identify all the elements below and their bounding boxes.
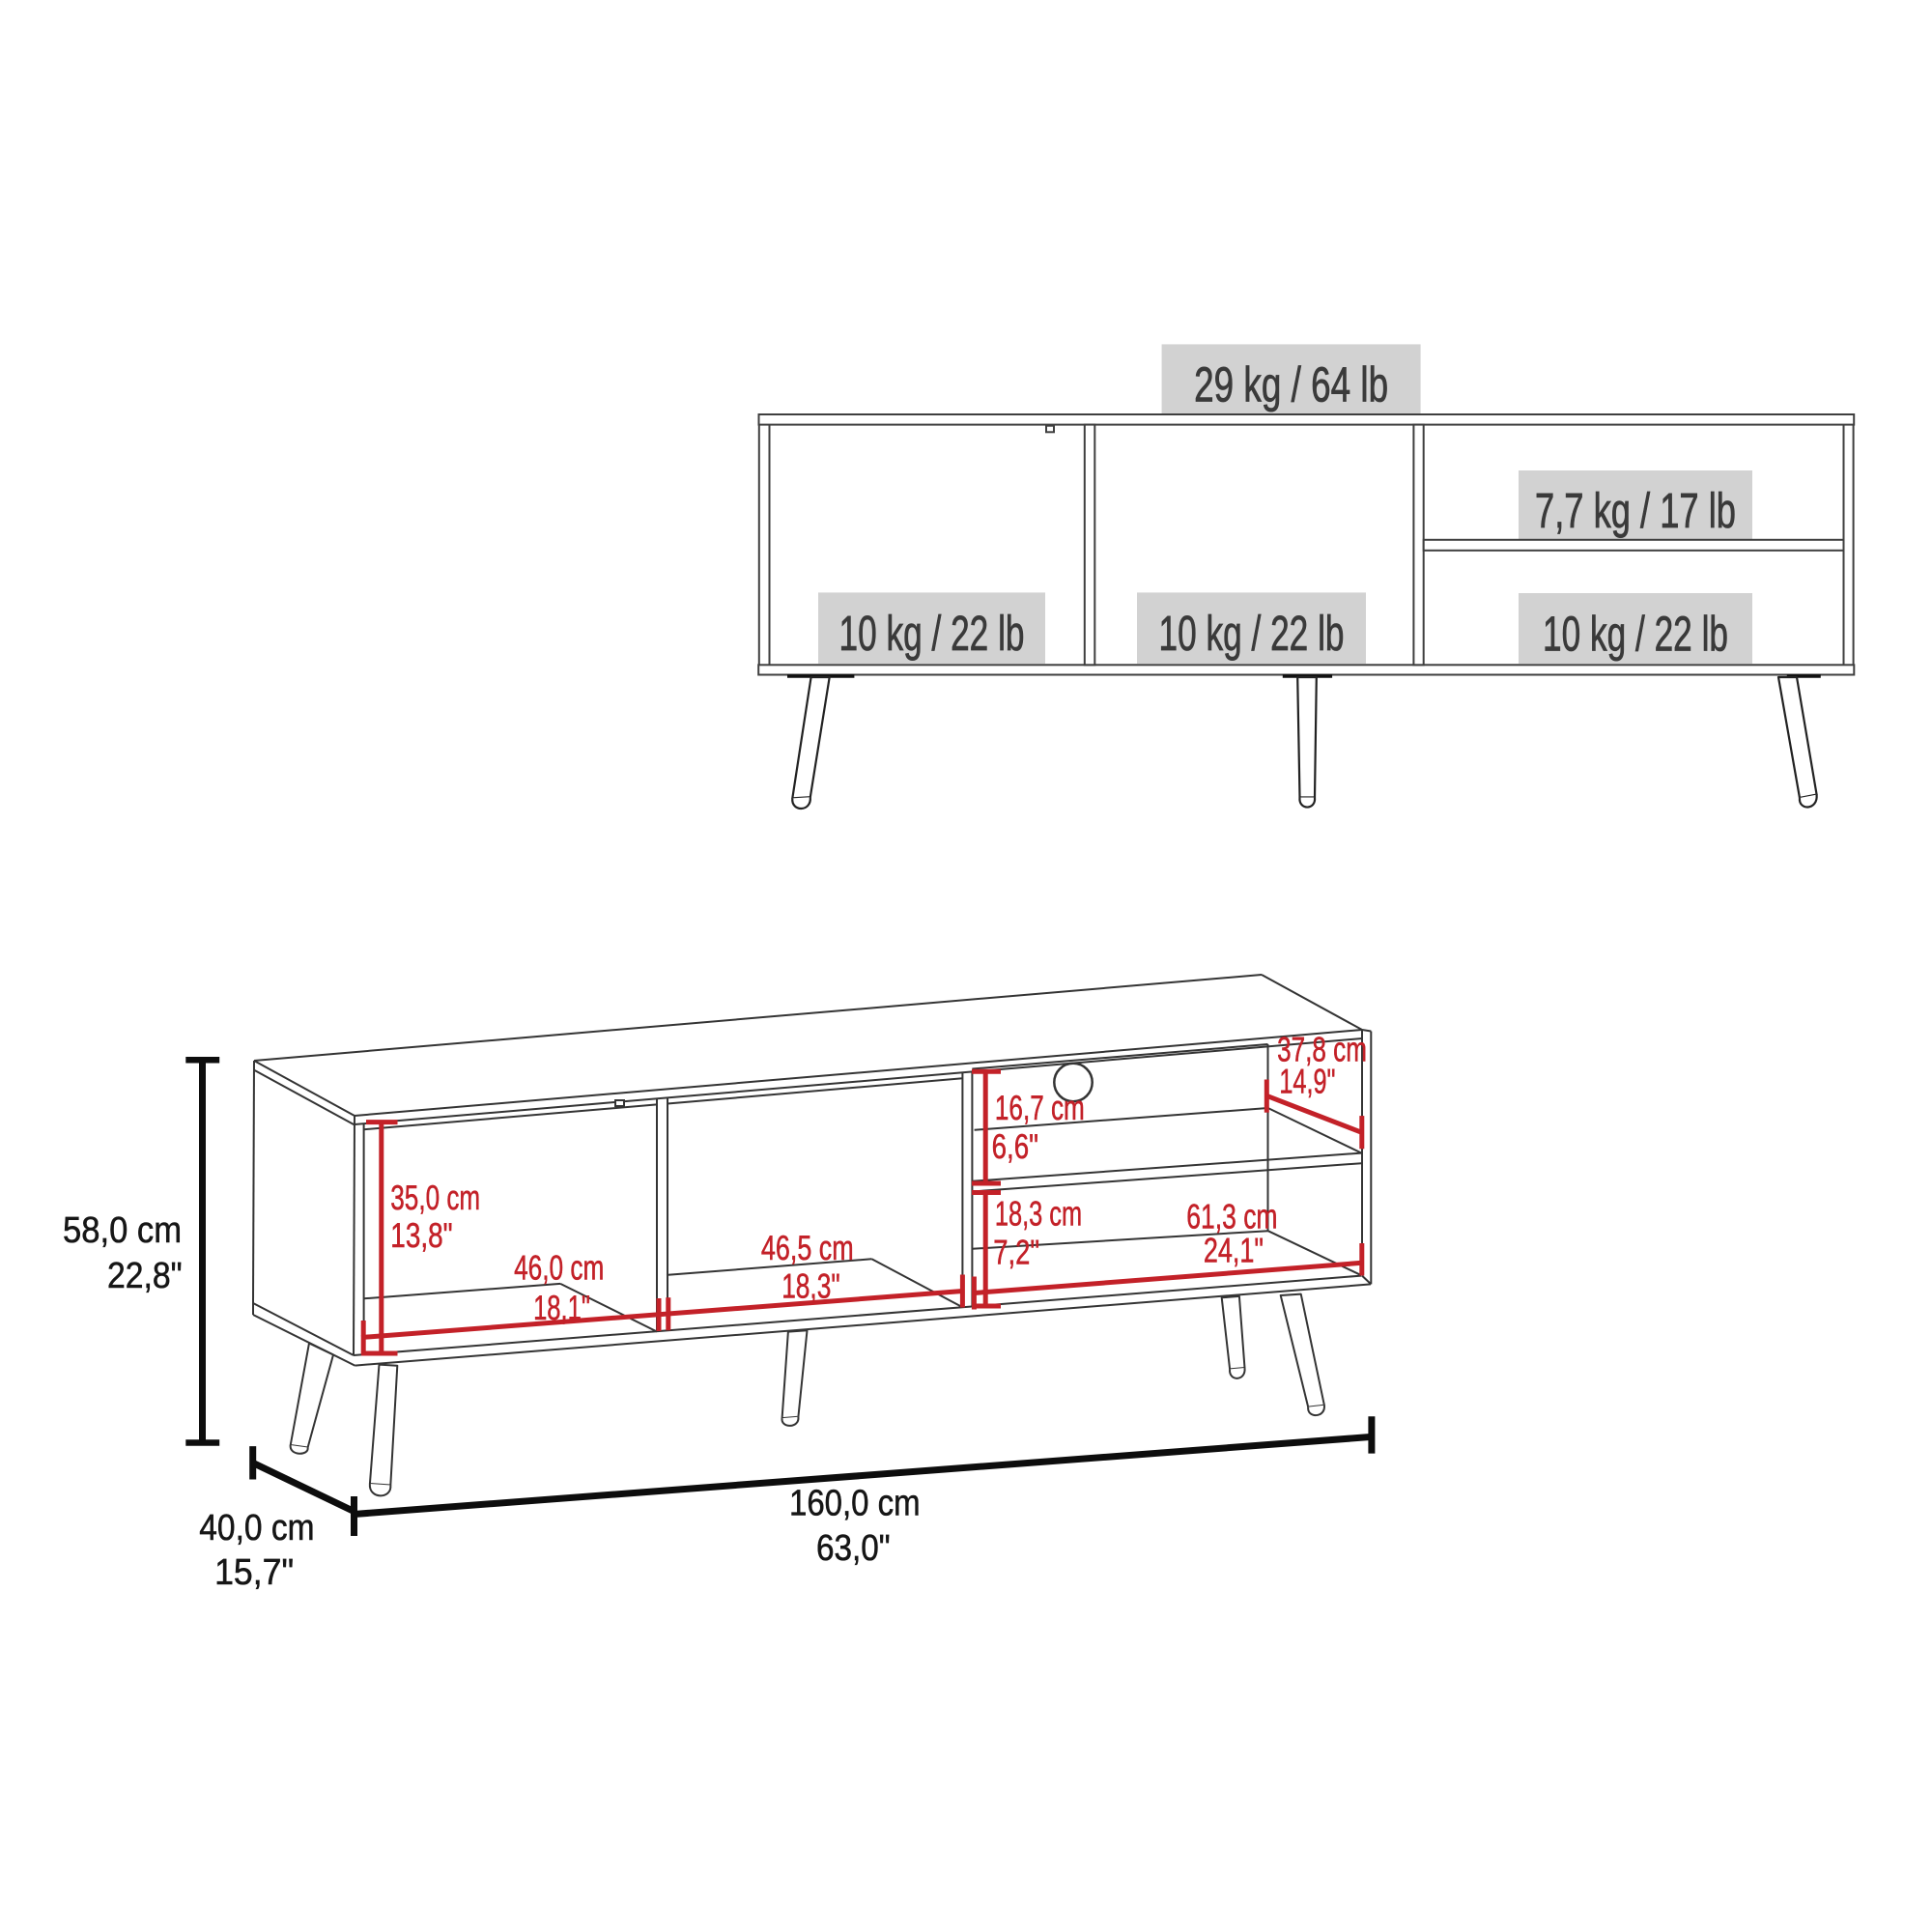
svg-text:160,0 cm: 160,0 cm bbox=[789, 1484, 921, 1524]
svg-text:6,6": 6,6" bbox=[992, 1126, 1038, 1166]
svg-text:35,0 cm: 35,0 cm bbox=[390, 1178, 480, 1217]
svg-text:16,7 cm: 16,7 cm bbox=[995, 1088, 1085, 1127]
svg-text:13,8": 13,8" bbox=[390, 1215, 452, 1255]
svg-text:46,0 cm: 46,0 cm bbox=[514, 1248, 604, 1288]
svg-text:58,0 cm: 58,0 cm bbox=[63, 1210, 182, 1251]
svg-text:46,5 cm: 46,5 cm bbox=[761, 1228, 854, 1267]
svg-text:18,1": 18,1" bbox=[533, 1288, 590, 1327]
svg-text:10 kg / 22 lb: 10 kg / 22 lb bbox=[1159, 606, 1345, 661]
svg-text:24,1": 24,1" bbox=[1204, 1231, 1264, 1270]
svg-text:7,2": 7,2" bbox=[993, 1233, 1039, 1272]
svg-text:10 kg / 22 lb: 10 kg / 22 lb bbox=[1543, 607, 1728, 662]
svg-text:29 kg / 64 lb: 29 kg / 64 lb bbox=[1194, 357, 1388, 412]
svg-text:15,7": 15,7" bbox=[214, 1552, 294, 1593]
svg-text:40,0 cm: 40,0 cm bbox=[199, 1508, 314, 1548]
svg-text:14,9": 14,9" bbox=[1279, 1061, 1335, 1100]
svg-text:63,0": 63,0" bbox=[816, 1528, 891, 1569]
svg-text:7,7 kg / 17 lb: 7,7 kg / 17 lb bbox=[1535, 483, 1736, 538]
svg-text:22,8": 22,8" bbox=[107, 1256, 183, 1296]
svg-text:18,3 cm: 18,3 cm bbox=[995, 1194, 1082, 1234]
svg-text:18,3": 18,3" bbox=[781, 1266, 840, 1306]
svg-text:10 kg / 22 lb: 10 kg / 22 lb bbox=[839, 606, 1025, 661]
